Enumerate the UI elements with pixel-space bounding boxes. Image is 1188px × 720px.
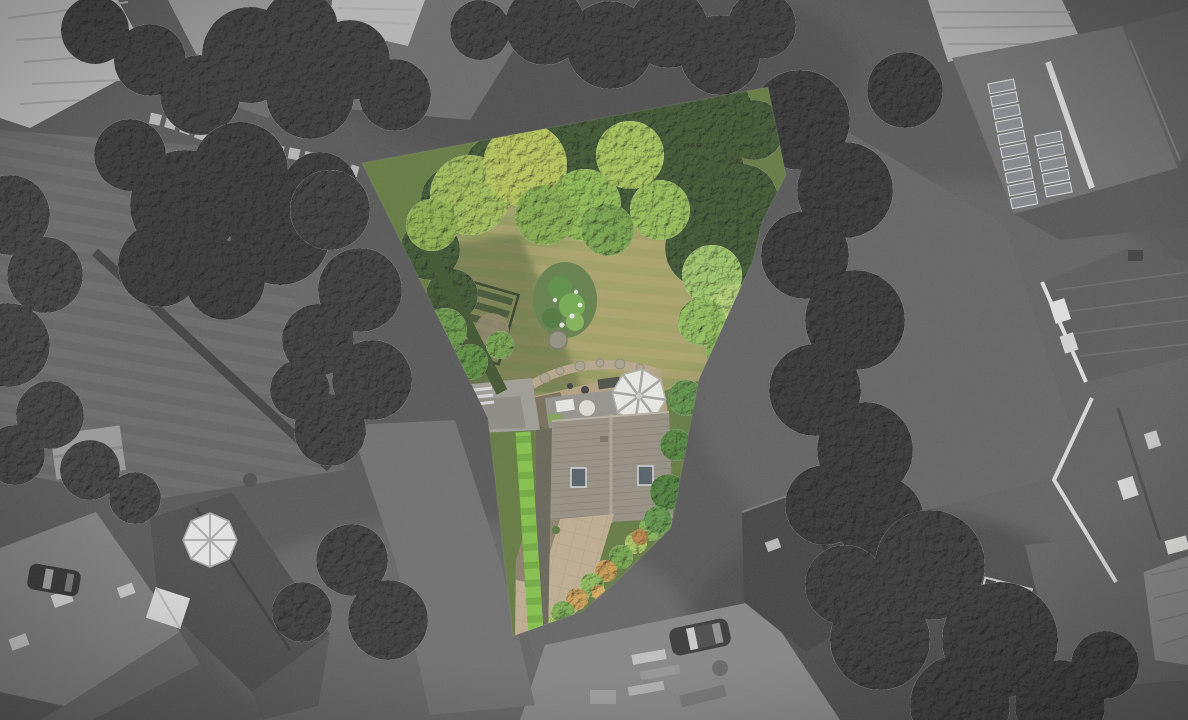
aerial-photo-canvas <box>0 0 1188 720</box>
vignette-overlay <box>0 0 1188 720</box>
aerial-photo <box>0 0 1188 720</box>
